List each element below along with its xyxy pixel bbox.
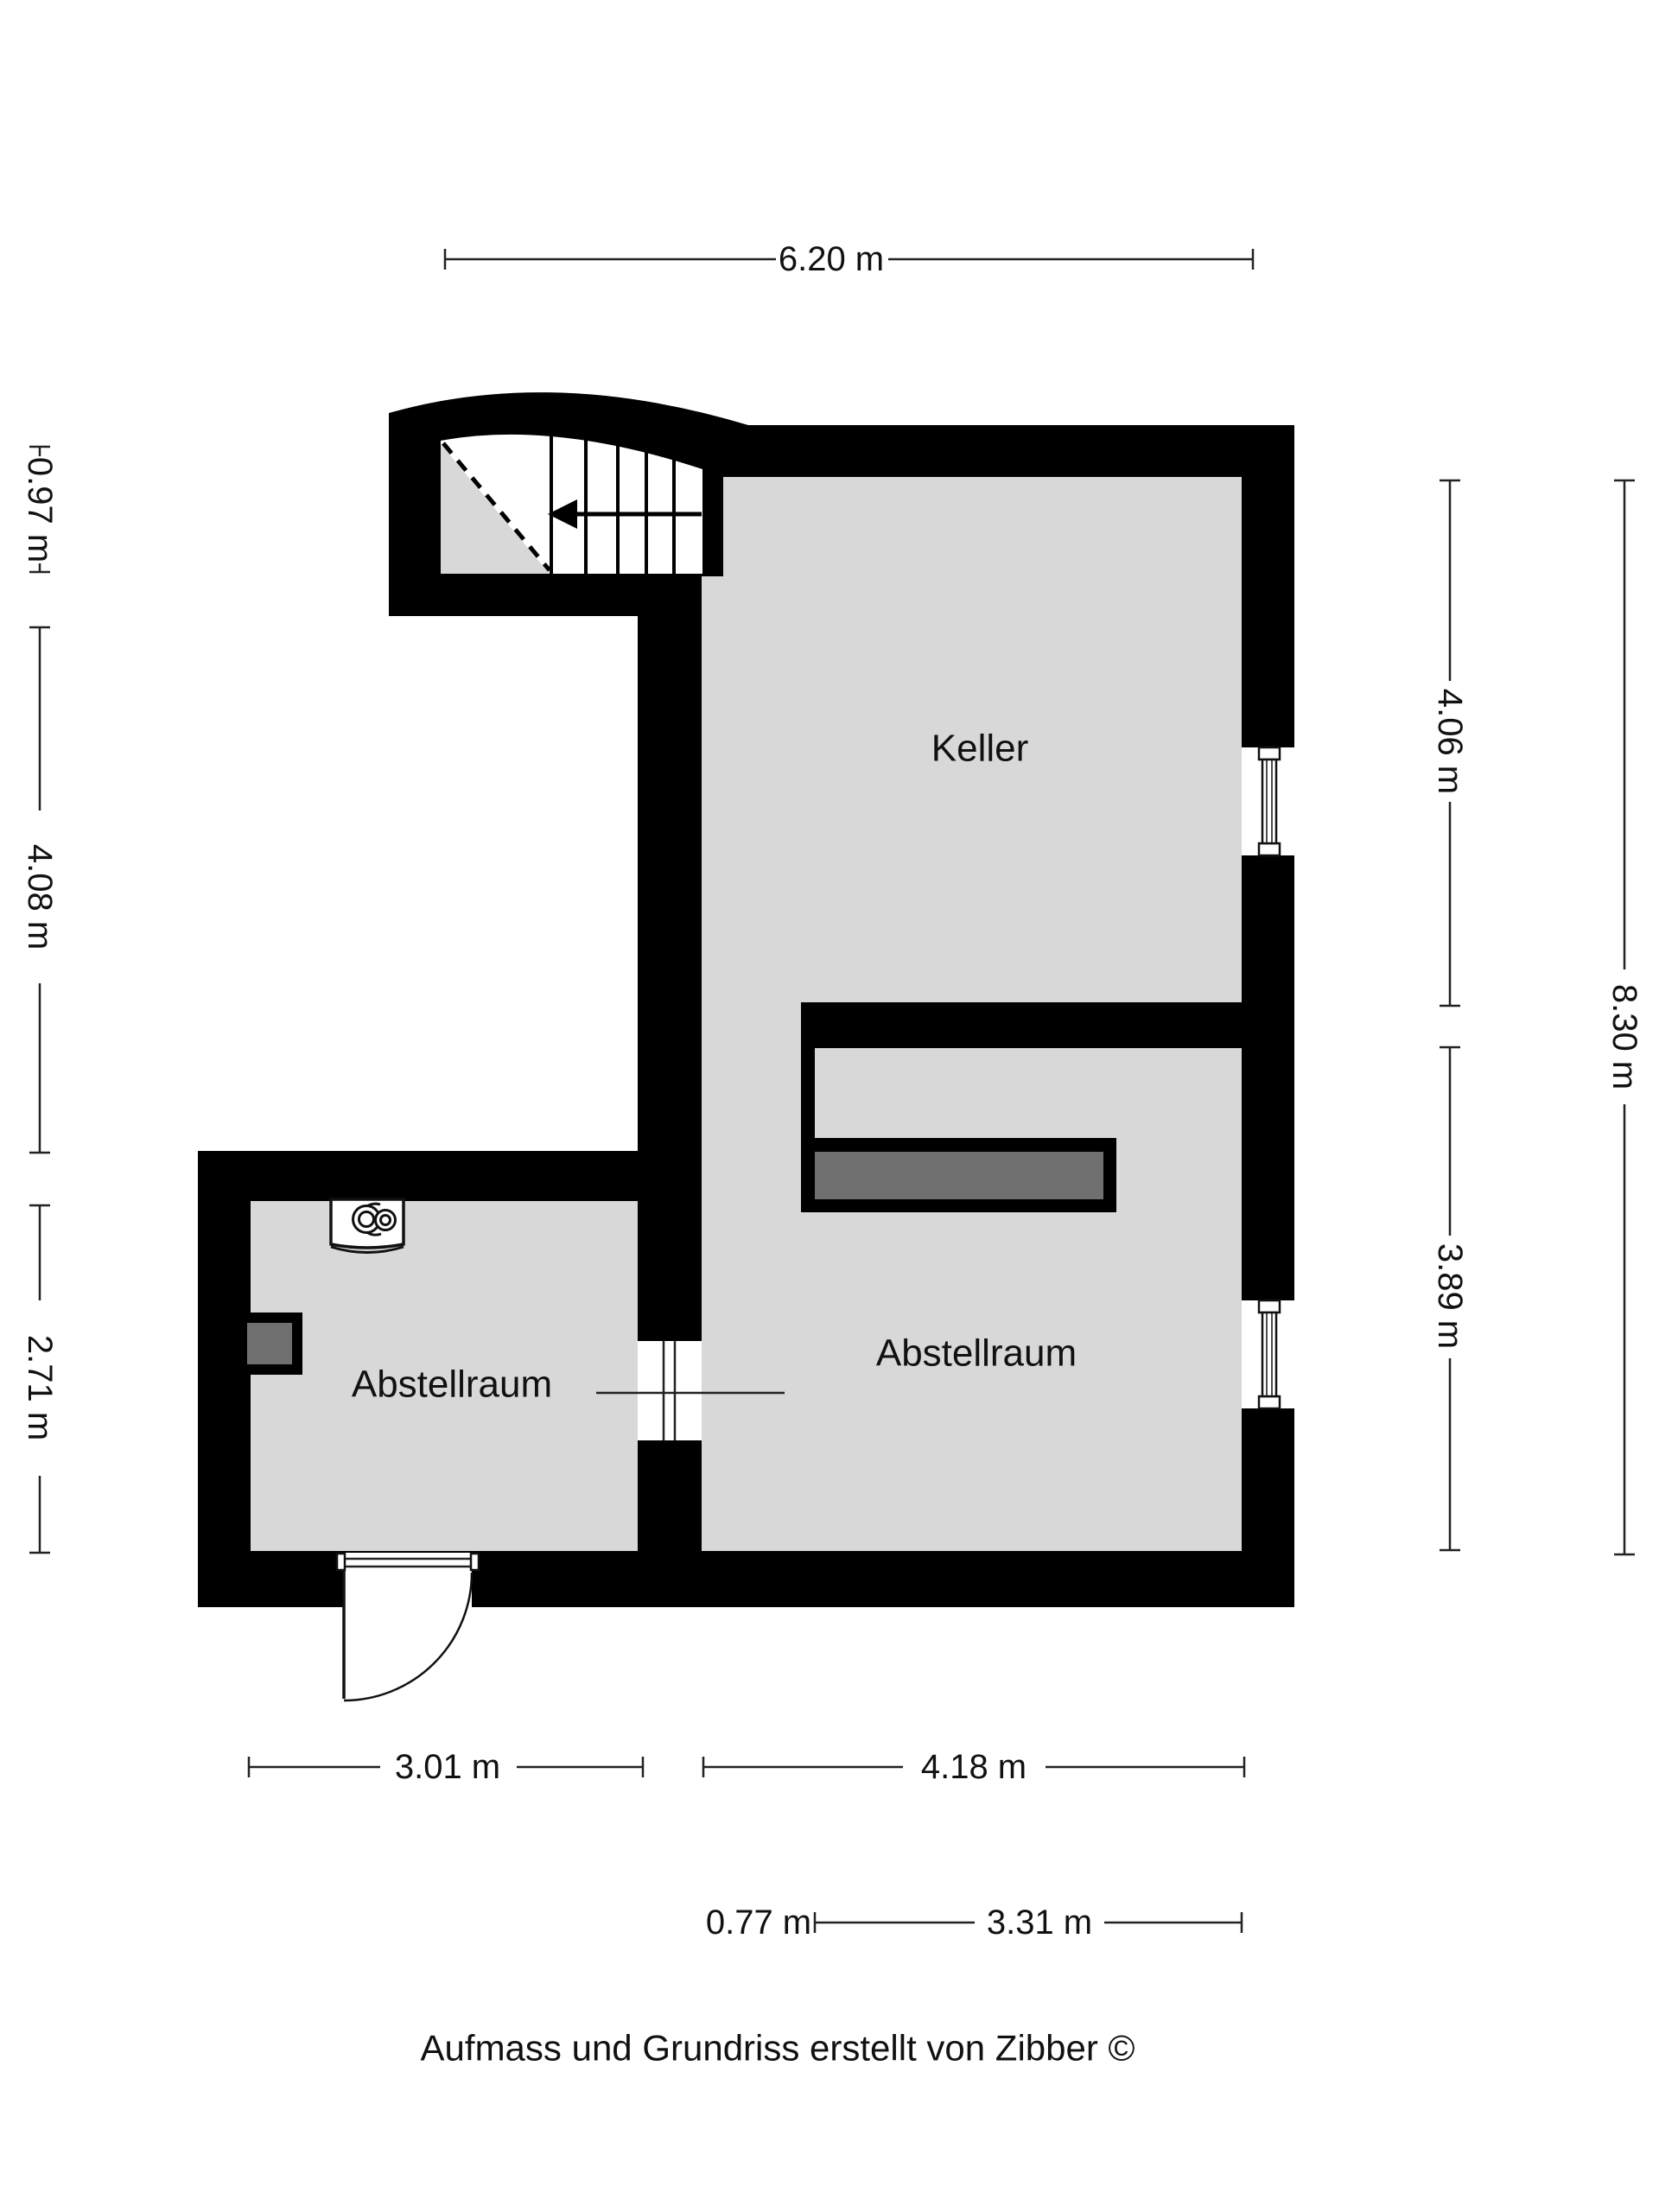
shelf-bottom-wall	[801, 1199, 1116, 1212]
dim-top-total-label: 6.20 m	[779, 240, 884, 278]
dim-left-keller-label: 4.08 m	[21, 844, 59, 950]
room-label-keller: Keller	[931, 728, 1029, 770]
dim-right-total: 8.30 m	[1605, 480, 1643, 1554]
dim-bottom-passage: 0.77 m	[706, 1904, 811, 1942]
dim-left-room: 2.71 m	[21, 1205, 59, 1553]
dim-bottom-right-room: 4.18 m	[703, 1748, 1244, 1786]
dim-right-room: 3.89 m	[1431, 1047, 1469, 1550]
boiler-icon	[331, 1199, 404, 1253]
footer-credit: Aufmass und Grundriss erstellt von Zibbe…	[421, 2028, 1135, 2069]
room-label-abstellraum-left: Abstellraum	[352, 1363, 552, 1406]
room-label-abstellraum-right: Abstellraum	[876, 1332, 1077, 1375]
dim-left-stair-label: 0.97 m	[21, 457, 59, 563]
dim-left-stair: 0.97 m	[21, 447, 59, 572]
dim-bottom-left-room: 3.01 m	[249, 1748, 643, 1786]
dim-bottom-inner-label: 3.31 m	[987, 1904, 1092, 1942]
keller-abstellraum-partition-wall	[801, 1002, 1294, 1048]
dim-left-keller: 4.08 m	[21, 627, 59, 1153]
entry-door-opening	[337, 1553, 479, 1700]
shelf-right-wall	[1103, 1138, 1116, 1212]
window-symbol-keller	[1242, 747, 1294, 855]
window-symbol-abstellraum	[1242, 1300, 1294, 1408]
wall-niche	[243, 1313, 302, 1375]
floorplan-drawing: Keller Abstellraum Abstellraum 6.20 m 0.…	[0, 0, 1659, 2212]
dim-bottom-left-room-label: 3.01 m	[395, 1748, 500, 1786]
floorplan-page: Keller Abstellraum Abstellraum 6.20 m 0.…	[0, 0, 1659, 2212]
wall-niche-fill	[247, 1323, 292, 1364]
dim-left-room-label: 2.71 m	[21, 1335, 59, 1440]
dim-bottom-right-room-label: 4.18 m	[921, 1748, 1027, 1786]
dim-right-total-label: 8.30 m	[1605, 984, 1643, 1090]
dim-bottom-passage-label: 0.77 m	[706, 1904, 811, 1942]
dim-right-room-label: 3.89 m	[1431, 1243, 1469, 1349]
shelf-surface	[815, 1152, 1103, 1199]
shelf-top-wall	[815, 1138, 1116, 1152]
shelf-left-wall	[801, 1002, 815, 1212]
dim-right-keller-label: 4.06 m	[1431, 689, 1469, 794]
dim-top-total: 6.20 m	[445, 240, 1253, 278]
dim-right-keller: 4.06 m	[1431, 480, 1469, 1006]
dim-bottom-inner: 3.31 m	[815, 1904, 1242, 1942]
